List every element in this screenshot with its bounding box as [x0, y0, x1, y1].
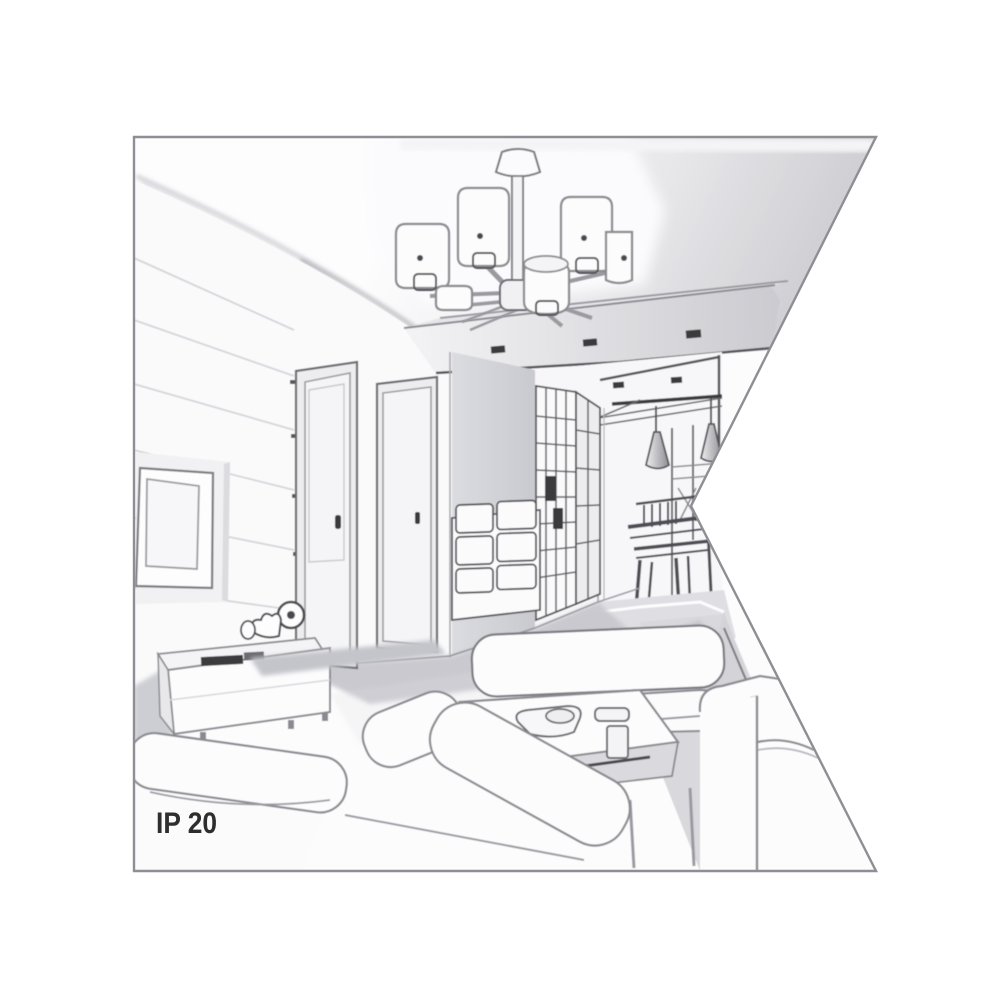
svg-text:IP 20: IP 20 — [156, 807, 217, 840]
